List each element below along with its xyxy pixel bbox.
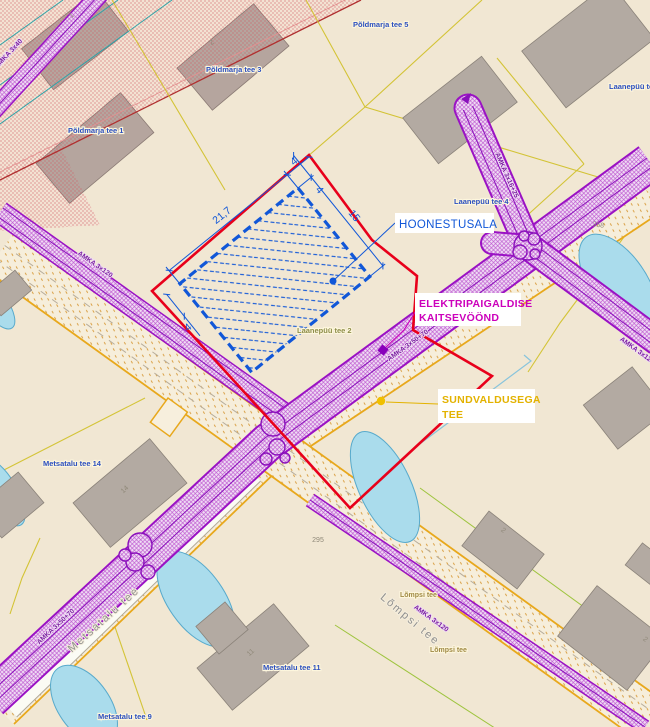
address-label: Lõmpsi tee (430, 647, 467, 654)
sundvaldus-label-line2: TEE (442, 409, 463, 421)
legend-kaitsevoond: ELEKTRIPAIGALDISE KAITSEVÖÖND (415, 293, 532, 326)
address-label: Laanepüü tee (609, 82, 650, 91)
legend-hoonestusala: HOONESTUSALA (395, 213, 497, 233)
sundvaldus-marker-dot (377, 397, 385, 405)
legend-sundvaldus: SUNDVALDUSEGA TEE (438, 389, 541, 423)
address-label: Lõmpsi tee (400, 592, 437, 599)
kaitsevoond-label-line1: ELEKTRIPAIGALDISE (419, 298, 532, 310)
address-label: Põldmarja tee 1 (68, 126, 123, 135)
sundvaldus-label-line1: SUNDVALDUSEGA (442, 394, 541, 406)
address-label: Metsatalu tee 9 (98, 712, 152, 721)
address-label: Laanepüü tee 2 (297, 326, 352, 335)
hoonestusala-label: HOONESTUSALA (399, 219, 497, 231)
parcel-number: 295 (312, 537, 324, 544)
map-canvas[interactable]: 21,7 15 4 4 4 Põldmarja tee 5 Põldmarja … (0, 0, 650, 727)
plan-map-svg: 21,7 15 4 4 4 Põldmarja tee 5 Põldmarja … (0, 0, 650, 727)
address-label: Laanepüü tee 4 (454, 197, 509, 206)
address-label: Põldmarja tee 5 (353, 20, 408, 29)
address-label: Põldmarja tee 3 (206, 65, 261, 74)
kaitsevoond-label-line2: KAITSEVÖÖND (419, 311, 499, 324)
address-label: Metsatalu tee 14 (43, 459, 102, 468)
address-label: Metsatalu tee 11 (263, 663, 321, 672)
